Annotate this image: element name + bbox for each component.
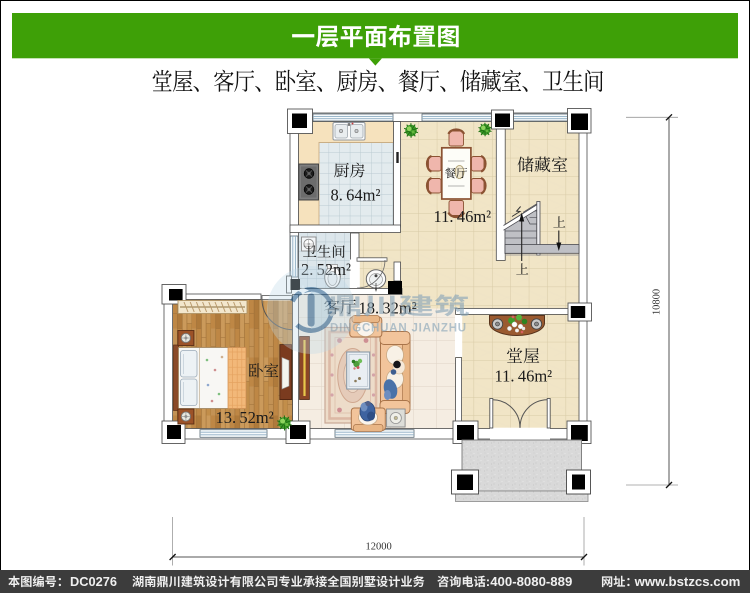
svg-text:8. 64m²: 8. 64m²: [331, 186, 381, 205]
svg-text:www.bstzcs.com: www.bstzcs.com: [634, 574, 741, 589]
svg-text:11. 46m²: 11. 46m²: [434, 207, 492, 226]
svg-text:DC0276: DC0276: [70, 574, 117, 589]
svg-text:12000: 12000: [365, 542, 391, 553]
svg-text::400-8080-889: :400-8080-889: [486, 574, 573, 589]
svg-text:13. 52m²: 13. 52m²: [216, 408, 274, 427]
svg-text:10800: 10800: [652, 289, 663, 315]
svg-text:DINGCHUAN JIANZHU: DINGCHUAN JIANZHU: [330, 323, 467, 335]
svg-text:11. 46m²: 11. 46m²: [495, 367, 553, 386]
